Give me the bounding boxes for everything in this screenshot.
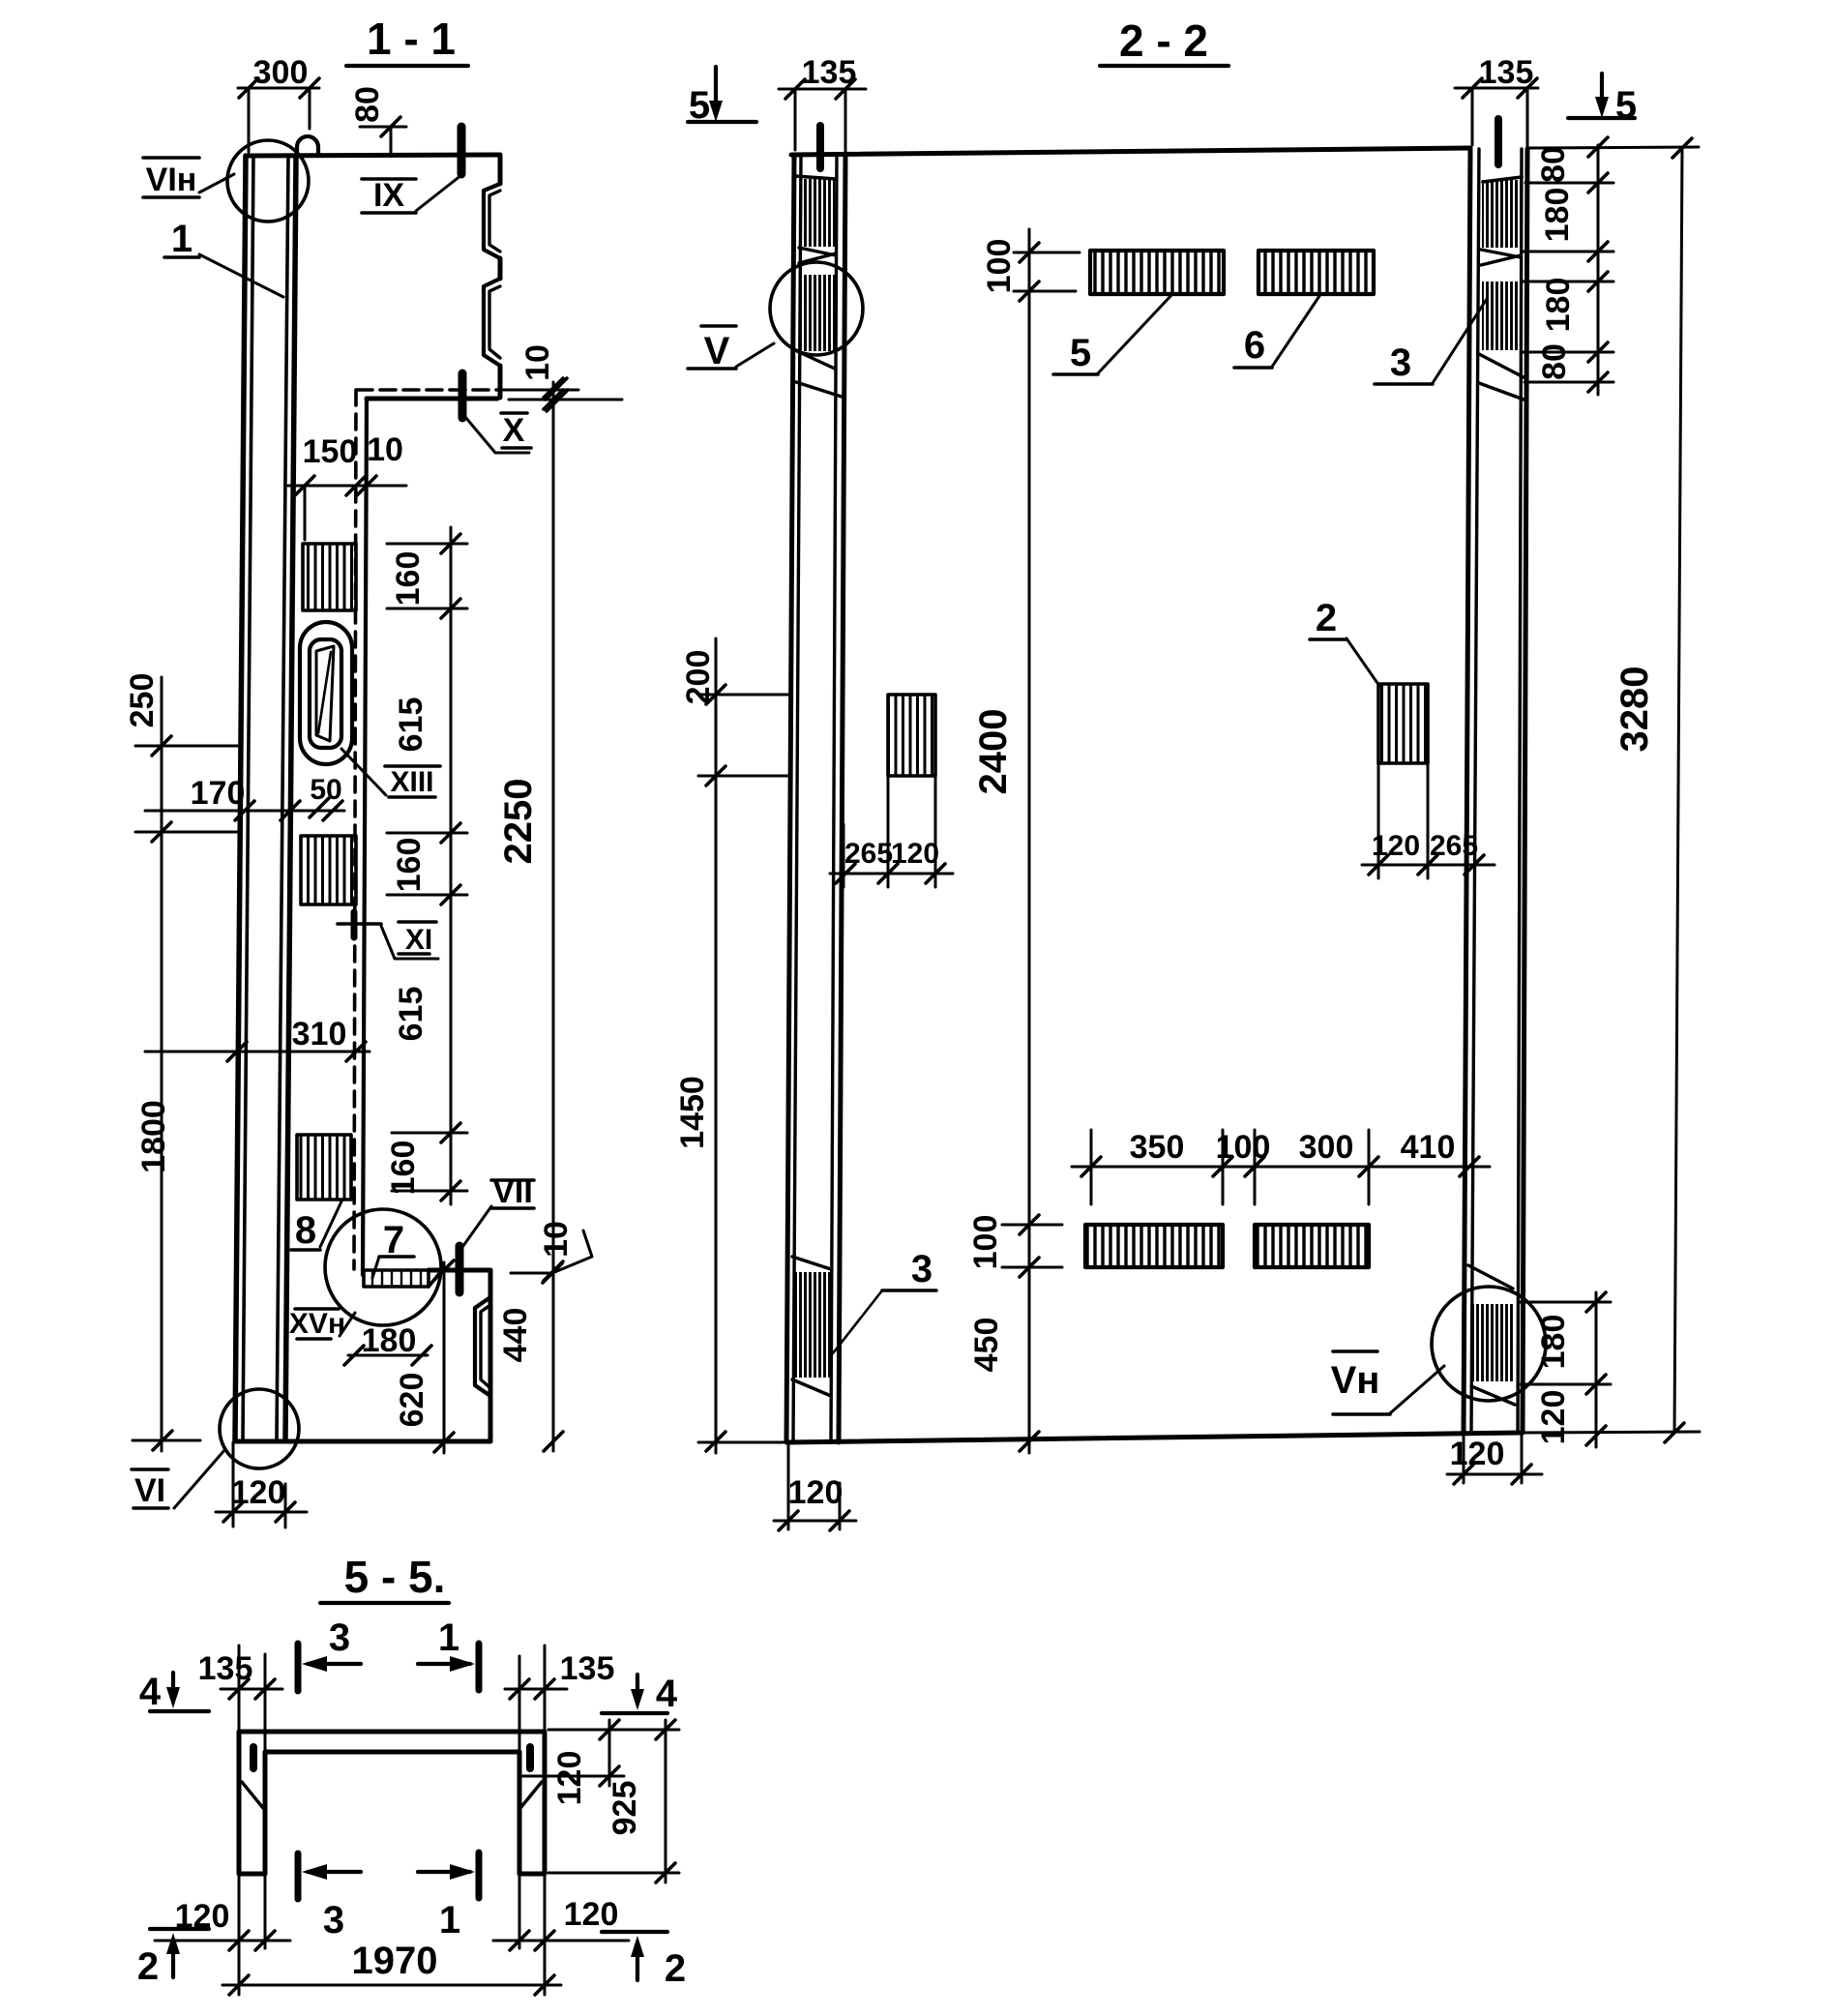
- svg-text:3280: 3280: [1613, 667, 1656, 753]
- svg-text:5 - 5.: 5 - 5.: [344, 1552, 446, 1602]
- svg-text:180: 180: [362, 1322, 417, 1359]
- svg-text:200: 200: [680, 650, 717, 705]
- svg-text:4: 4: [139, 1671, 162, 1713]
- svg-text:80: 80: [349, 86, 386, 123]
- svg-text:350: 350: [1130, 1129, 1185, 1166]
- svg-text:5: 5: [1070, 332, 1091, 374]
- svg-text:150: 150: [303, 433, 358, 470]
- svg-text:1800: 1800: [135, 1100, 172, 1173]
- svg-text:4: 4: [656, 1673, 678, 1715]
- svg-text:1: 1: [171, 218, 192, 260]
- svg-text:120: 120: [1450, 1436, 1505, 1472]
- svg-text:410: 410: [1401, 1129, 1456, 1166]
- svg-text:2: 2: [665, 1947, 686, 1990]
- svg-text:1: 1: [439, 1899, 460, 1942]
- svg-text:10: 10: [367, 431, 403, 468]
- svg-text:3: 3: [911, 1248, 932, 1290]
- svg-text:1: 1: [438, 1616, 459, 1659]
- svg-text:440: 440: [497, 1308, 534, 1363]
- svg-text:1970: 1970: [352, 1940, 438, 1982]
- svg-text:XVн: XVн: [289, 1308, 345, 1340]
- svg-text:2250: 2250: [497, 779, 540, 865]
- svg-text:2: 2: [1316, 597, 1337, 639]
- svg-text:300: 300: [253, 54, 309, 91]
- svg-text:100: 100: [981, 239, 1018, 294]
- svg-text:1450: 1450: [674, 1076, 711, 1149]
- svg-text:450: 450: [968, 1318, 1005, 1373]
- svg-text:250: 250: [124, 673, 161, 728]
- svg-text:8: 8: [295, 1209, 316, 1252]
- svg-text:135: 135: [560, 1650, 615, 1687]
- svg-text:615: 615: [393, 697, 429, 753]
- svg-text:XIII: XIII: [390, 766, 433, 798]
- svg-text:80: 80: [1535, 146, 1572, 183]
- svg-text:VIн: VIн: [146, 162, 197, 198]
- svg-text:5: 5: [1615, 84, 1637, 127]
- svg-text:120: 120: [1535, 1390, 1572, 1445]
- svg-text:3: 3: [323, 1899, 344, 1942]
- svg-text:160: 160: [391, 838, 428, 893]
- svg-text:X: X: [503, 412, 525, 449]
- svg-text:10: 10: [519, 344, 556, 381]
- svg-text:180: 180: [1539, 188, 1576, 243]
- svg-text:IX: IX: [373, 177, 404, 214]
- svg-text:2: 2: [137, 1945, 159, 1988]
- svg-text:80: 80: [1536, 343, 1573, 380]
- svg-text:925: 925: [607, 1781, 643, 1836]
- svg-text:120: 120: [551, 1751, 588, 1806]
- svg-text:3: 3: [329, 1616, 350, 1659]
- svg-text:10: 10: [538, 1221, 575, 1258]
- svg-text:VII: VII: [492, 1173, 533, 1210]
- svg-text:XI: XI: [405, 924, 432, 956]
- svg-text:160: 160: [385, 1141, 422, 1196]
- svg-text:2400: 2400: [972, 709, 1015, 795]
- svg-text:VI: VI: [134, 1472, 165, 1509]
- svg-text:135: 135: [1479, 54, 1534, 91]
- svg-text:170: 170: [191, 775, 246, 812]
- svg-text:620: 620: [394, 1373, 430, 1428]
- svg-text:Vн: Vн: [1331, 1359, 1380, 1402]
- svg-text:160: 160: [390, 551, 427, 607]
- svg-text:2 - 2: 2 - 2: [1119, 15, 1208, 66]
- svg-text:300: 300: [1299, 1129, 1354, 1166]
- svg-text:180: 180: [1540, 278, 1577, 333]
- svg-text:100: 100: [967, 1215, 1004, 1270]
- svg-text:3: 3: [1390, 341, 1411, 384]
- svg-text:310: 310: [292, 1016, 347, 1052]
- svg-text:120: 120: [564, 1896, 619, 1933]
- svg-text:6: 6: [1244, 324, 1265, 367]
- svg-text:180: 180: [1535, 1315, 1572, 1370]
- svg-text:615: 615: [393, 987, 429, 1042]
- svg-text:V: V: [704, 330, 730, 372]
- svg-text:1 - 1: 1 - 1: [367, 14, 456, 64]
- svg-text:120: 120: [788, 1474, 844, 1511]
